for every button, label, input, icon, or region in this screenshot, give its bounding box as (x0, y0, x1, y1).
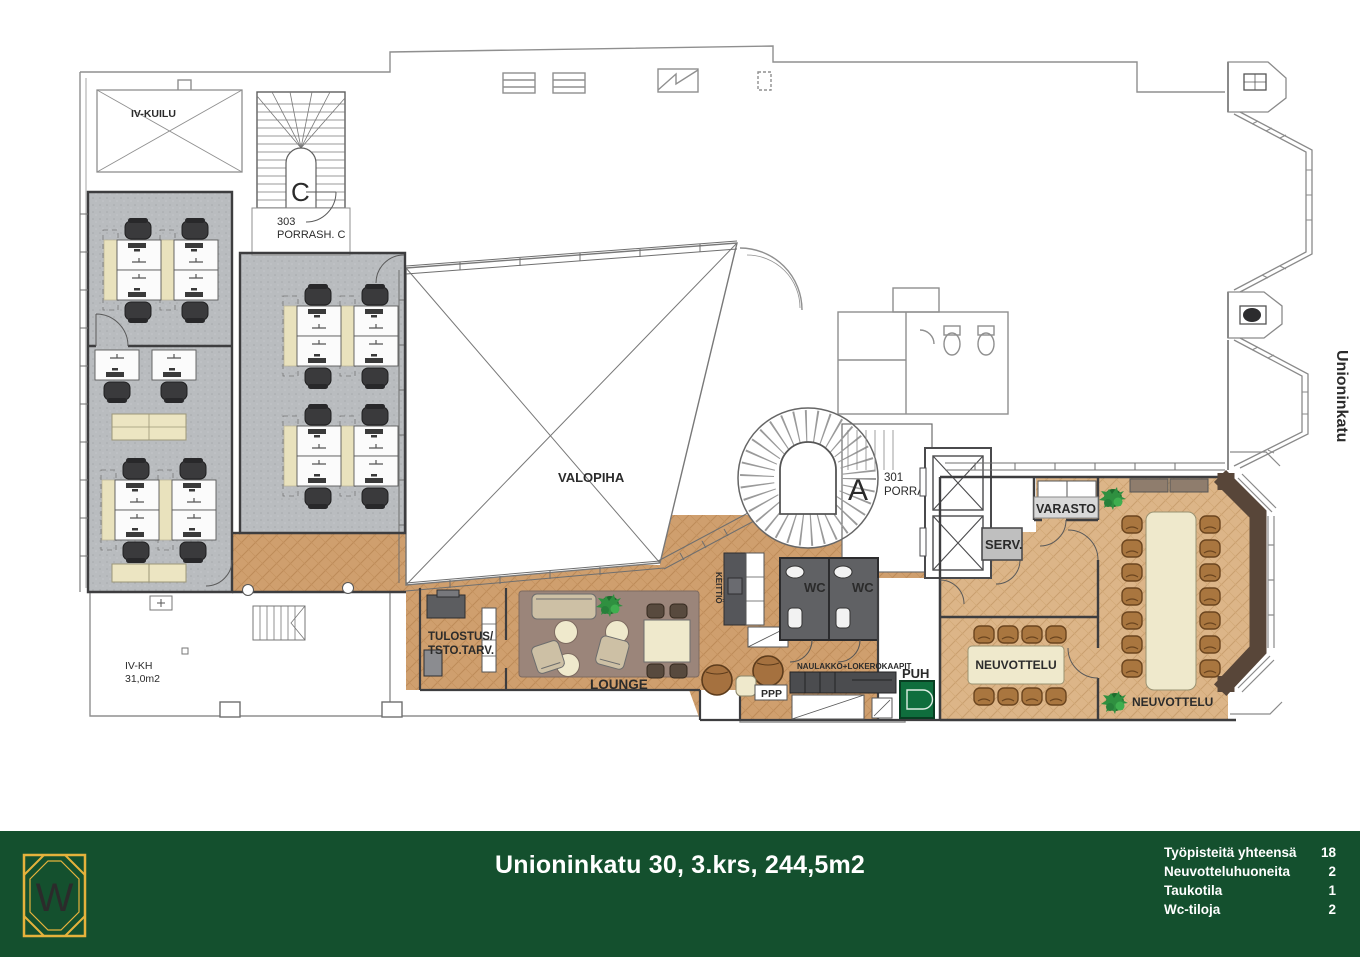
logo-letter: W (36, 876, 74, 920)
ppp-label: PPP (761, 688, 782, 700)
iv-kh-label-2: 31,0m2 (125, 673, 160, 685)
stat-label: Taukotila (1164, 881, 1222, 900)
stat-row: Taukotila 1 (1164, 881, 1336, 900)
serv-label: SERV. (985, 537, 1023, 552)
stat-value: 2 (1328, 862, 1336, 881)
footer-bar: W Unioninkatu 30, 3.krs, 244,5m2 Työpist… (0, 831, 1360, 957)
puh-label: PUH (902, 666, 929, 681)
stat-row: Wc-tiloja 2 (1164, 900, 1336, 919)
street-facade (1228, 62, 1312, 470)
floorplan-drawing: Unioninkatu V (0, 0, 1360, 831)
staircase-c: C 303 PORRASH. C (252, 92, 350, 255)
stat-value: 2 (1328, 900, 1336, 919)
meeting-small-label: NEUVOTTELU (975, 658, 1056, 672)
stat-row: Neuvotteluhuoneita 2 (1164, 862, 1336, 881)
footer-bg (0, 831, 1360, 957)
stair-c-name: PORRASH. C (277, 229, 346, 241)
kitchen-label: KEITTIÖ (714, 572, 723, 604)
stat-row: Työpisteitä yhteensä 18 (1164, 843, 1336, 862)
street-label: Unioninkatu (1333, 350, 1350, 442)
tulostus-label-2: TSTO.TARV. (428, 645, 494, 657)
stat-value: 1 (1328, 881, 1336, 900)
stat-value: 18 (1321, 843, 1336, 862)
stair-a-number: 301 (884, 472, 903, 484)
iv-kuilu-shaft: IV-KUILU (97, 90, 242, 172)
stat-label: Työpisteitä yhteensä (1164, 843, 1297, 862)
tulostus-label-1: TULOSTUS/ (428, 631, 494, 643)
meeting-large-label: NEUVOTTELU (1132, 695, 1213, 709)
stair-c-number: 303 (277, 216, 295, 228)
valopiha-lightwell: VALOPIHA (399, 241, 754, 591)
valopiha-label: VALOPIHA (558, 470, 625, 485)
naulakko-label: NAULAKKO+LOKEROKAAPIT (797, 662, 912, 671)
lounge-label: LOUNGE (590, 677, 648, 692)
wc1-label: WC (804, 580, 826, 595)
stair-a-letter: A (848, 474, 868, 507)
stat-label: Neuvotteluhuoneita (1164, 862, 1290, 881)
stat-label: Wc-tiloja (1164, 900, 1220, 919)
plan-title: Unioninkatu 30, 3.krs, 244,5m2 (0, 851, 1360, 880)
wc2-label: WC (852, 580, 874, 595)
iv-kh-room: IV-KH 31,0m2 (125, 596, 305, 685)
iv-kuilu-label: IV-KUILU (131, 108, 176, 120)
elevators (920, 448, 991, 578)
floorplan-page: Unioninkatu V (0, 0, 1360, 962)
iv-kh-label-1: IV-KH (125, 660, 152, 672)
varasto-label: VARASTO (1036, 502, 1096, 516)
stats-panel: Työpisteitä yhteensä 18 Neuvotteluhuonei… (1164, 843, 1336, 919)
